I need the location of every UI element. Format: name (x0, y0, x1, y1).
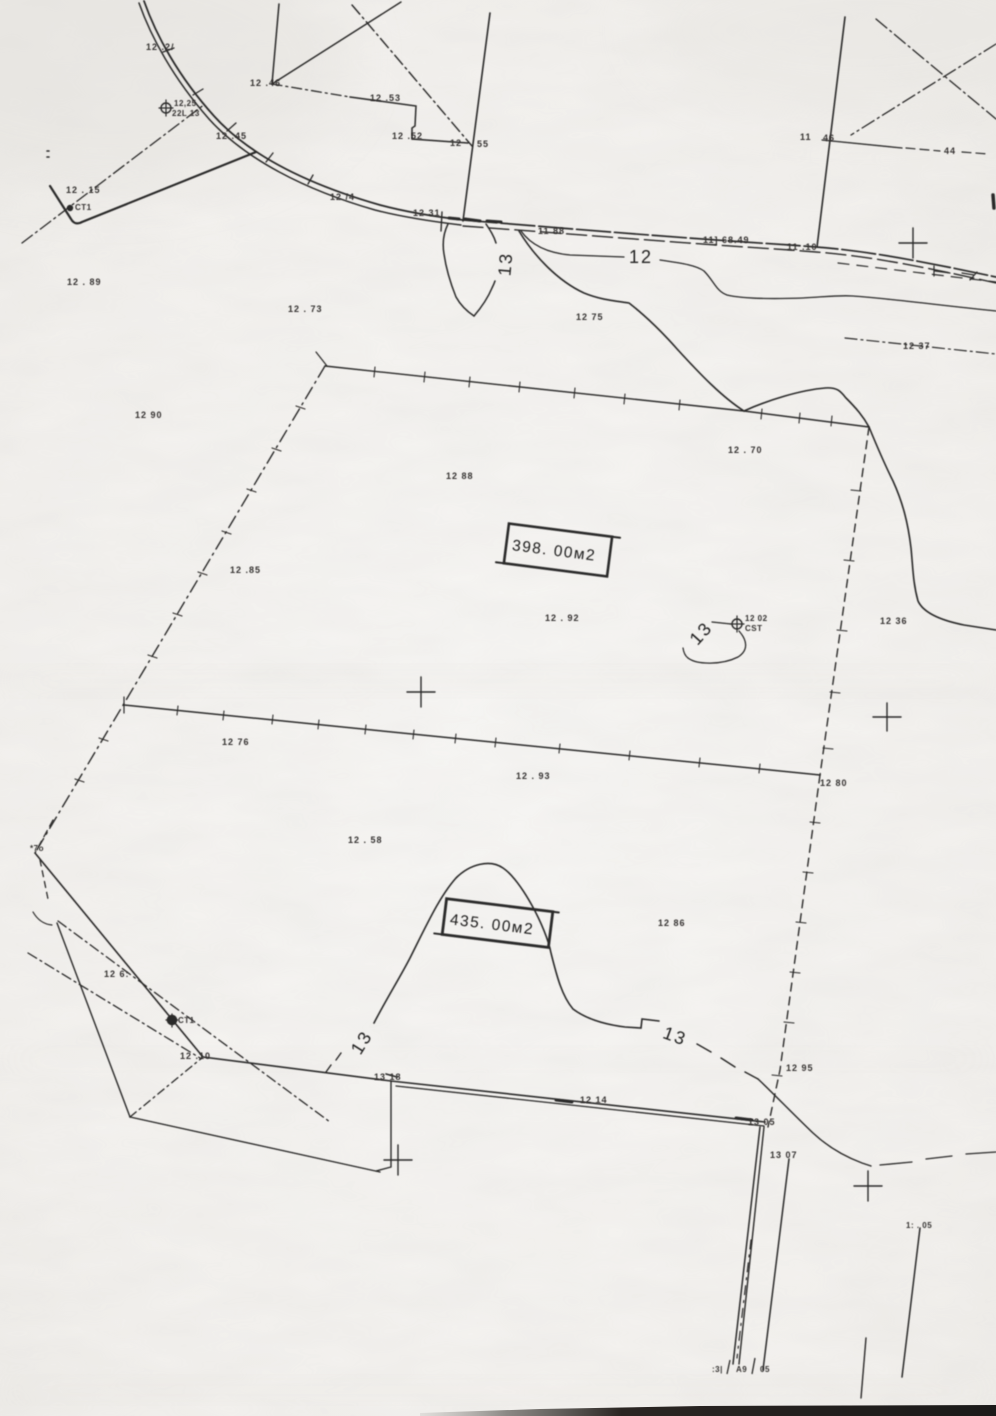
svg-text:22L 13: 22L 13 (172, 109, 200, 118)
svg-text:12 . 92: 12 . 92 (545, 613, 580, 623)
svg-text:1: . 05: 1: . 05 (906, 1221, 932, 1230)
svg-text:CT1: CT1 (75, 203, 92, 212)
svg-text:11 88: 11 88 (538, 226, 565, 236)
svg-text:12 . 73: 12 . 73 (288, 304, 323, 314)
svg-text:12 95: 12 95 (786, 1063, 814, 1073)
svg-text:11] 68.49: 11] 68.49 (703, 235, 750, 245)
svg-text:CST: CST (745, 624, 763, 633)
svg-text:12 75: 12 75 (576, 312, 604, 322)
svg-text:12 .2/: 12 .2/ (146, 42, 175, 52)
svg-text:12 90: 12 90 (135, 410, 163, 420)
svg-text:*7o: *7o (30, 844, 44, 853)
svg-text:12 . 15: 12 . 15 (66, 185, 101, 195)
svg-text:12: 12 (450, 138, 462, 148)
svg-text:12: 12 (629, 247, 653, 267)
svg-text:12 . 70: 12 . 70 (728, 445, 763, 455)
svg-text:12 14: 12 14 (580, 1095, 608, 1105)
svg-text:11 .10: 11 .10 (787, 242, 818, 252)
svg-text:13 18: 13 18 (374, 1072, 402, 1082)
svg-text:CT1: CT1 (178, 1016, 195, 1025)
svg-text:12 .53: 12 .53 (370, 93, 401, 103)
svg-text:12 .46: 12 .46 (250, 78, 281, 88)
svg-text:46: 46 (823, 133, 835, 143)
svg-text:05: 05 (760, 1365, 770, 1374)
svg-text:12 36: 12 36 (880, 616, 908, 626)
svg-text:12 37: 12 37 (903, 341, 931, 351)
svg-text:12 .85: 12 .85 (230, 565, 261, 575)
svg-text:12 80: 12 80 (820, 778, 848, 788)
svg-text:12 . 58: 12 . 58 (348, 835, 383, 845)
svg-text:13 05: 13 05 (748, 1117, 776, 1127)
svg-text:12 88: 12 88 (446, 471, 474, 481)
svg-text:12 . 93: 12 . 93 (516, 771, 551, 781)
svg-text:44: 44 (944, 146, 956, 156)
svg-text:12 .52: 12 .52 (392, 131, 423, 141)
svg-text:12 .10: 12 .10 (180, 1051, 211, 1061)
svg-text:12 31: 12 31 (413, 208, 441, 218)
svg-text:12 02: 12 02 (745, 614, 768, 623)
svg-text:12 /4: 12 /4 (330, 192, 355, 202)
svg-text:12,25: 12,25 (174, 99, 197, 108)
svg-text:12 6:: 12 6: (104, 969, 130, 979)
svg-text:11: 11 (800, 132, 812, 142)
svg-text:55: 55 (477, 139, 489, 149)
svg-text:12 . 89: 12 . 89 (67, 277, 102, 287)
svg-text:12 76: 12 76 (222, 737, 250, 747)
svg-text::3|: :3| (712, 1365, 723, 1374)
svg-text:A9: A9 (736, 1365, 747, 1374)
svg-text:12 .45: 12 .45 (216, 131, 247, 141)
svg-text:13: 13 (494, 251, 516, 277)
svg-text:13 07: 13 07 (770, 1150, 798, 1160)
svg-text:12 86: 12 86 (658, 918, 686, 928)
